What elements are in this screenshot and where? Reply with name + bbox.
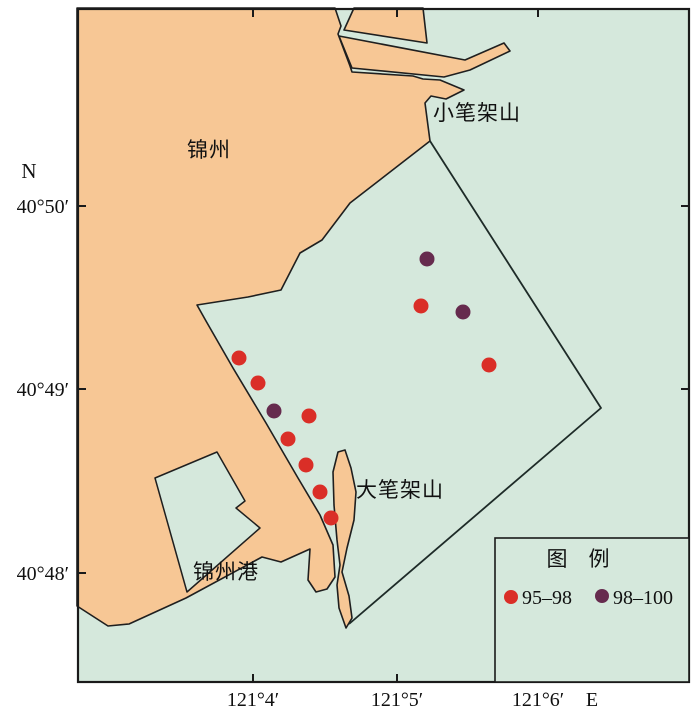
station-dot <box>232 351 247 366</box>
legend-title: 图 例 <box>547 547 610 571</box>
label-jinzhou: 锦州 <box>187 138 231 162</box>
legend-dot-98-100 <box>595 589 609 603</box>
legend-label-98-100: 98–100 <box>613 587 673 609</box>
station-dot <box>251 376 266 391</box>
x-axis-tick-label: 121°6′ <box>512 689 564 711</box>
y-axis-tick-label: 40°50′ <box>17 196 69 218</box>
station-dot <box>414 299 429 314</box>
x-axis-tick-label: 121°5′ <box>371 689 423 711</box>
legend-dot-95-98 <box>504 590 518 604</box>
station-dot <box>281 432 296 447</box>
label-jinzhou-port: 锦州港 <box>193 560 259 584</box>
station-dot <box>267 404 282 419</box>
station-dot <box>324 511 339 526</box>
label-dabijiashan: 大笔架山 <box>356 478 444 502</box>
station-dot <box>420 252 435 267</box>
station-dot <box>299 458 314 473</box>
map-canvas: 121°4′121°5′121°6′40°50′40°49′40°48′ 图 例… <box>0 0 700 711</box>
y-axis-tick-label: 40°48′ <box>17 563 69 585</box>
label-xiaobijiashan: 小笔架山 <box>433 101 521 125</box>
station-dot <box>302 409 317 424</box>
north-axis-label: N <box>21 159 36 183</box>
east-axis-label: E <box>586 689 598 711</box>
y-axis-tick-label: 40°49′ <box>17 379 69 401</box>
station-dot <box>456 305 471 320</box>
station-dot <box>482 358 497 373</box>
legend: 图 例 95–98 98–100 <box>495 538 689 682</box>
map-figure: 121°4′121°5′121°6′40°50′40°49′40°48′ 图 例… <box>0 0 700 711</box>
x-axis-tick-label: 121°4′ <box>227 689 279 711</box>
legend-label-95-98: 95–98 <box>522 587 572 609</box>
station-dot <box>313 485 328 500</box>
